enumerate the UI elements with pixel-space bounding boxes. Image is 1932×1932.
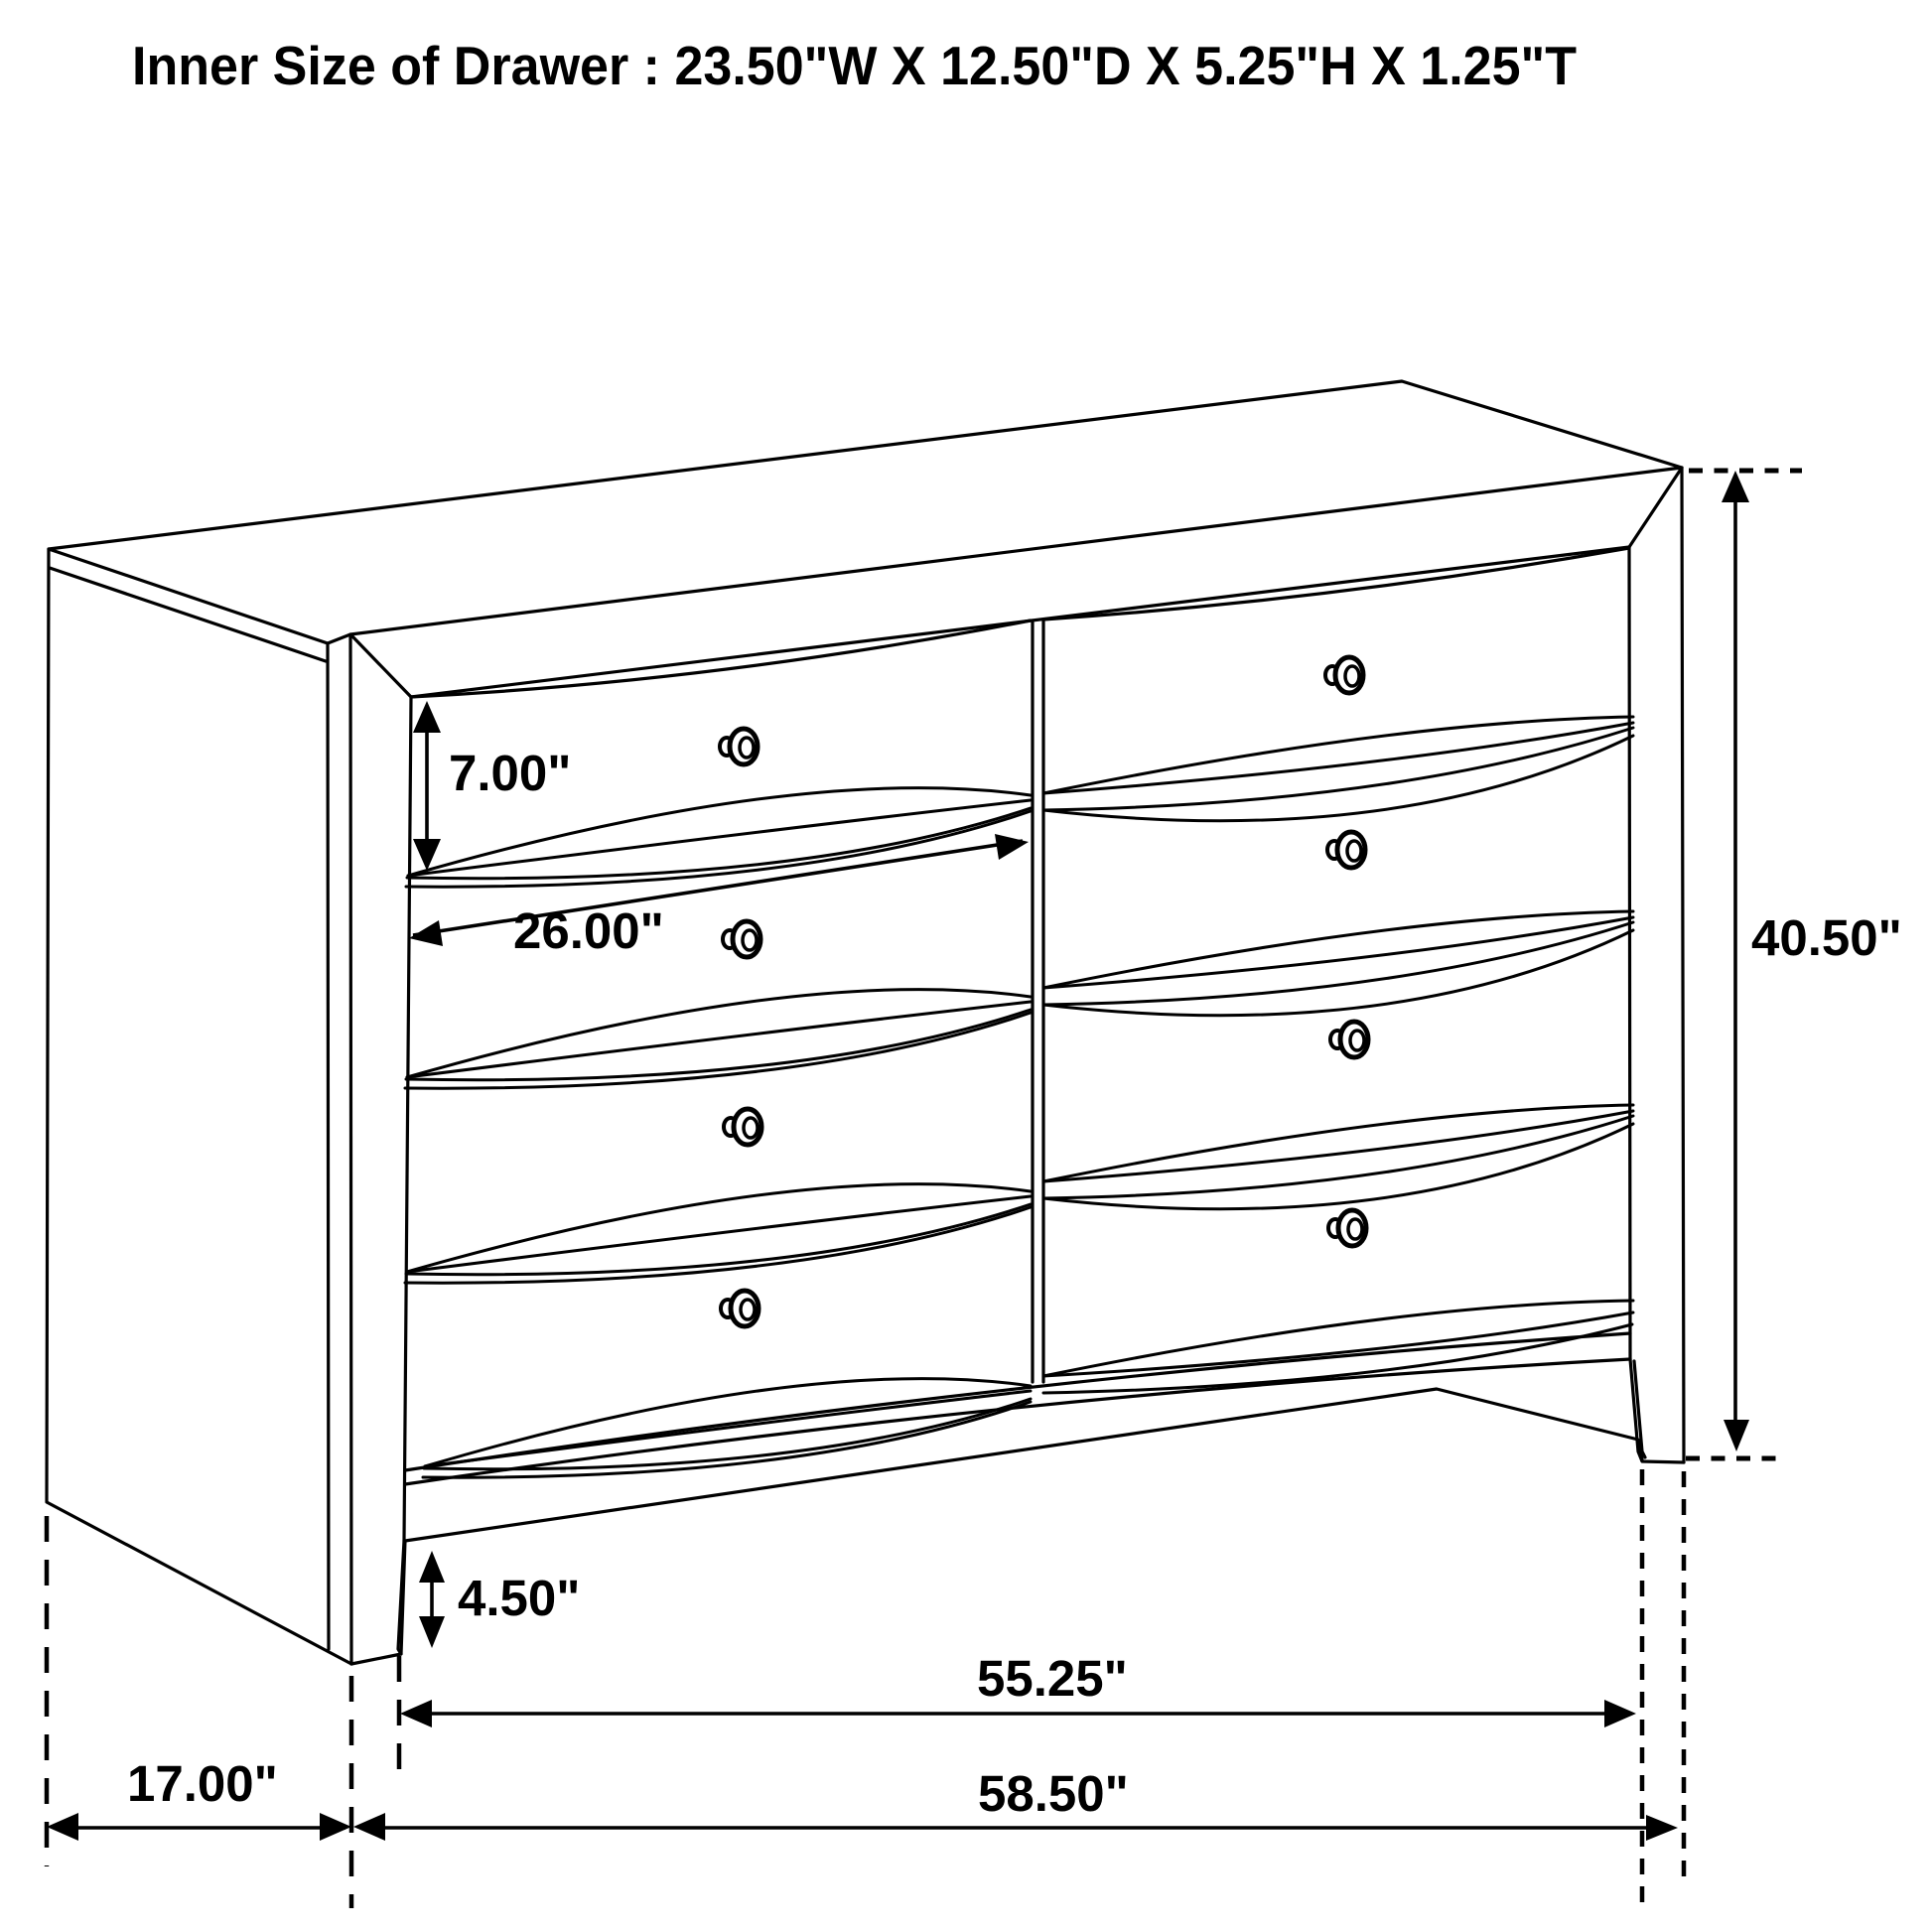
svg-text:40.50": 40.50" bbox=[1751, 909, 1902, 966]
svg-text:4.50": 4.50" bbox=[458, 1570, 580, 1626]
svg-text:26.00": 26.00" bbox=[513, 902, 664, 959]
svg-text:17.00": 17.00" bbox=[127, 1755, 278, 1812]
svg-text:55.25": 55.25" bbox=[977, 1650, 1128, 1707]
svg-text:7.00": 7.00" bbox=[449, 745, 571, 801]
svg-text:Inner Size of Drawer : 23.50"W: Inner Size of Drawer : 23.50"W X 12.50"D… bbox=[132, 35, 1577, 96]
svg-text:58.50": 58.50" bbox=[978, 1765, 1129, 1822]
